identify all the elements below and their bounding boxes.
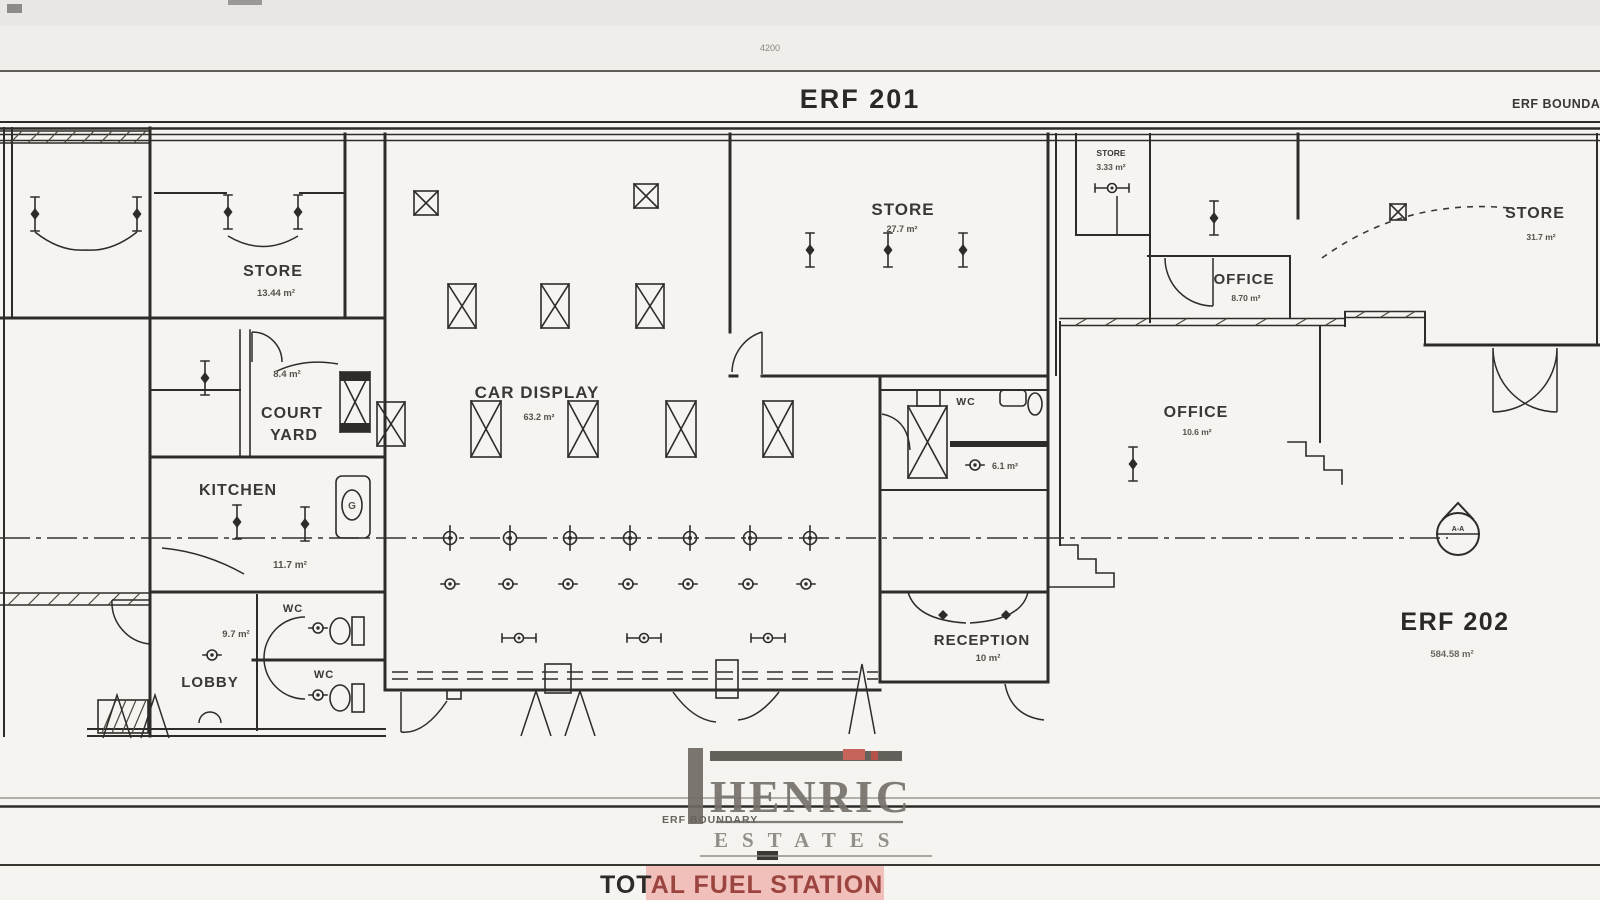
room-area-office-large: 10.6 m²	[1182, 427, 1211, 437]
room-label-wc-center: WC	[956, 396, 976, 408]
room-area-store-center: 27.7 m²	[886, 224, 917, 234]
column-icon	[541, 284, 569, 328]
erf201-label: ERF 201	[800, 84, 921, 114]
dimension-top-label: 4200	[760, 43, 780, 53]
column-icon	[414, 191, 438, 215]
room-label-office-small: OFFICE	[1214, 271, 1275, 288]
logo-red-mark	[843, 749, 865, 760]
room-area-kitchen: 11.7 m²	[273, 560, 308, 571]
erf-boundary-bottom-label: ERF BOUNDARY	[662, 814, 758, 826]
footer-title-red: AL FUEL STATION	[651, 871, 884, 899]
room-area-lobby: 9.7 m²	[222, 629, 249, 640]
logo-red-mark-2	[871, 751, 878, 760]
room-label-reception: RECEPTION	[934, 632, 1031, 649]
room-area-office-small: 8.70 m²	[1231, 293, 1260, 303]
room-area-store-right: 31.7 m²	[1526, 232, 1555, 242]
logo-subname: ESTATES	[714, 828, 903, 852]
room-area-store-left: 13.44 m²	[257, 288, 295, 299]
column-icon	[377, 402, 405, 446]
wc-shaft	[908, 390, 947, 478]
footer-title: TOTAL FUEL STATION	[600, 866, 884, 900]
sanitary-equipment	[330, 372, 1042, 712]
column-icon	[666, 401, 696, 457]
column-icon	[634, 184, 658, 208]
room-label-store-left: STORE	[243, 263, 303, 280]
column-icon	[763, 401, 793, 457]
storefront-glazing	[392, 672, 878, 679]
svg-text:TOTAL FUEL STATION: TOTAL FUEL STATION	[600, 871, 883, 899]
column-icon	[448, 284, 476, 328]
erf-boundary-top-right-label: ERF BOUNDARY	[1512, 97, 1600, 111]
room-label-store-small: STORE	[1096, 148, 1125, 158]
section-marker-label: A-A	[1452, 526, 1464, 533]
room-area-store-small: 3.33 m²	[1096, 162, 1125, 172]
room-area-reception: 10 m²	[976, 653, 1001, 664]
duct-shaft	[340, 372, 370, 432]
erf202-area: 584.58 m²	[1430, 649, 1473, 660]
watermark-logo: HENRIC ESTATES ERF BOUNDARY	[662, 748, 932, 856]
room-label-kitchen: KITCHEN	[199, 482, 277, 499]
room-label-courtyard-1: COURT	[261, 405, 323, 422]
site-labels: ERF 201 ERF BOUNDARY 4200 ERF 202 584.58…	[760, 43, 1600, 660]
centerline: A-A	[0, 503, 1479, 555]
stove-g-label: G	[348, 501, 356, 512]
building-walls	[0, 128, 1600, 736]
room-label-courtyard-2: YARD	[270, 427, 318, 444]
column-icon	[636, 284, 664, 328]
site-boundary-lines	[0, 71, 1600, 865]
room-label-wc-top: WC	[283, 603, 303, 615]
room-area-wc-center: 6.1 m²	[992, 461, 1018, 471]
column-icon	[471, 401, 501, 457]
room-area-car-display: 63.2 m²	[523, 412, 554, 422]
room-label-store-center: STORE	[871, 200, 934, 219]
section-marker-icon: A-A	[1437, 503, 1479, 555]
room-label-store-right: STORE	[1505, 205, 1565, 222]
room-label-wc-bottom: WC	[314, 669, 334, 681]
room-label-car-display: CAR DISPLAY	[475, 383, 600, 402]
floor-plan-scan: A-A	[0, 0, 1600, 900]
room-label-office-large: OFFICE	[1164, 404, 1229, 421]
footer-title-black: TOT	[600, 871, 651, 899]
erf202-label: ERF 202	[1400, 608, 1509, 636]
room-label-lobby: LOBBY	[181, 674, 239, 691]
logo-stem	[688, 748, 703, 824]
room-area-courtyard: 8.4 m²	[273, 369, 300, 380]
column-icon	[568, 401, 598, 457]
floor-plan-drawing: A-A	[0, 0, 1600, 900]
light-point-icon	[1390, 204, 1406, 220]
